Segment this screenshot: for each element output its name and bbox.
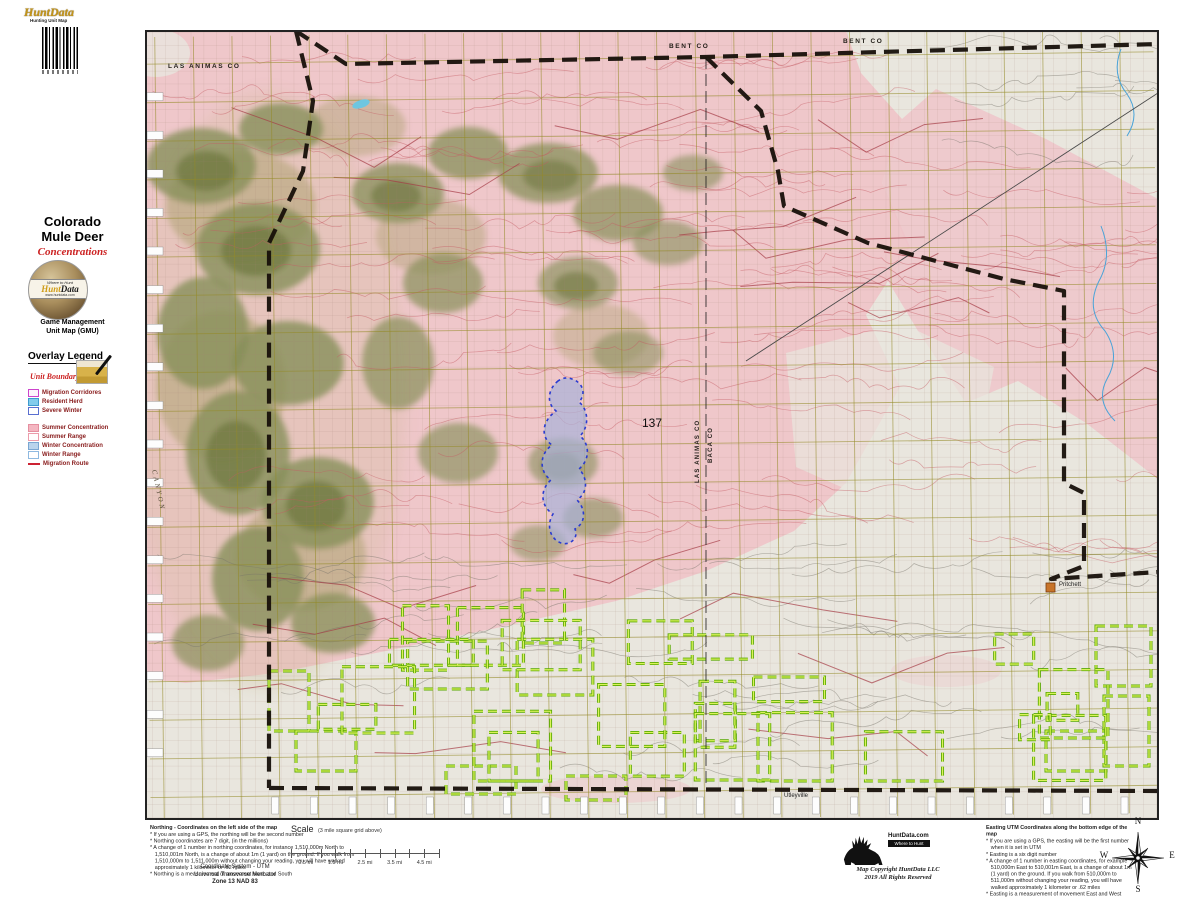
huntdata-elk-logo: HuntData.com Where to Hunt — [836, 825, 966, 861]
legend-line-swatch — [28, 463, 40, 465]
map-title-line1: Colorado — [0, 214, 145, 229]
legend-item: Migration Corridores — [28, 388, 143, 397]
legend-item: Migration Route — [28, 459, 143, 468]
scale-tick — [380, 849, 381, 858]
legend-group: Migration CorridoresResident HerdSevere … — [28, 388, 143, 415]
coord-system-line2: Universal Transverse Mercator — [160, 872, 310, 880]
elk-logo-tagline: Where to Hunt — [888, 840, 930, 847]
legend-item-label: Winter Concentration — [42, 443, 103, 449]
legend-swatch — [28, 407, 39, 415]
legend-swatch — [28, 451, 39, 459]
map-title-line2: Mule Deer — [0, 229, 145, 244]
scale-tick — [424, 849, 425, 858]
legend-item-label: Migration Corridores — [42, 390, 101, 396]
compass-rose: N W E S — [1103, 822, 1173, 894]
scale-block: Scale (3 mile square grid above) 0.5 mi1… — [291, 819, 471, 867]
colorado-map-thumbnail — [76, 360, 108, 384]
legend-item-label: Migration Route — [43, 461, 89, 467]
legend-item: Resident Herd — [28, 397, 143, 406]
map-subtitle-concentrations: Concentrations — [0, 246, 145, 258]
legend-item-label: Resident Herd — [42, 399, 83, 405]
legend-item-label: Winter Range — [42, 452, 81, 458]
legend-swatch — [28, 433, 39, 441]
scale-tick — [395, 849, 396, 858]
sidebar: Colorado Mule Deer Concentrations Where … — [0, 0, 145, 900]
elk-logo-name: HuntData.com — [888, 833, 930, 839]
scale-tick-label: 3.5 mi — [384, 860, 406, 866]
scale-tick-label: 4.5 mi — [413, 860, 435, 866]
scale-tick-label: 1.5 mi — [324, 860, 346, 866]
scale-tick — [306, 849, 307, 858]
legend-item: Severe Winter — [28, 406, 143, 415]
scale-sublabel: (3 mile square grid above) — [318, 828, 382, 834]
map-artwork — [146, 31, 1158, 819]
huntdata-logo: Where to Hunt HuntData www.huntdata.com — [28, 260, 88, 320]
legend-swatch — [28, 424, 39, 432]
compass-star — [1103, 822, 1173, 894]
elk-icon — [836, 825, 890, 865]
legend-swatch — [28, 442, 39, 450]
legend-item: Summer Range — [28, 432, 143, 441]
legend-swatch — [28, 389, 39, 397]
huntdata-url: www.huntdata.com — [28, 293, 88, 297]
map-title: Colorado Mule Deer — [0, 214, 145, 244]
copyright-line2: 2019 All Rights Reserved — [828, 874, 968, 882]
legend-item-label: Summer Concentration — [42, 425, 108, 431]
scale-label: Scale — [291, 824, 314, 834]
town-marker-pritchett — [1046, 583, 1055, 592]
gmu-label-line2: Unit Map (GMU) — [0, 327, 145, 336]
coord-system-line1: Coordinate System - UTM — [160, 864, 310, 872]
scale-tick — [365, 849, 366, 858]
legend-swatch — [28, 398, 39, 406]
map-sheet-page: HuntData Hunting Unit Map Colorado Mule … — [0, 0, 1200, 900]
scale-tick-label: 2.5 mi — [354, 860, 376, 866]
scale-tick — [409, 849, 410, 858]
scale-tick-label: 0.5 mi — [295, 860, 317, 866]
legend-item: Winter Concentration — [28, 441, 143, 450]
coord-system-line3: Zone 13 NAD 83 — [160, 879, 310, 887]
overlay-legend-list: Migration CorridoresResident HerdSevere … — [28, 388, 143, 476]
scale-tick — [321, 849, 322, 858]
scale-tick — [439, 849, 440, 858]
huntdata-wordmark: HuntData — [28, 285, 88, 293]
scale-tick — [335, 849, 336, 858]
coordinate-system-note: Coordinate System - UTM Universal Transv… — [160, 864, 310, 887]
legend-item: Winter Range — [28, 450, 143, 459]
gmu-label: Game Management Unit Map (GMU) — [0, 318, 145, 336]
legend-item-label: Severe Winter — [42, 408, 82, 414]
legend-group: Summer ConcentrationSummer RangeWinter C… — [28, 423, 143, 468]
unit-boundary-label: Unit Boundary — [30, 372, 80, 381]
gmu-label-line1: Game Management — [0, 318, 145, 327]
scale-tick — [350, 849, 351, 858]
copyright-line1: Map Copyright HuntData LLC — [828, 866, 968, 874]
scale-bar: 0.5 mi1.5 mi2.5 mi3.5 mi4.5 mi — [291, 845, 441, 867]
scale-tick — [291, 849, 292, 858]
huntdata-logo-band: Where to Hunt HuntData www.huntdata.com — [28, 279, 88, 299]
legend-item: Summer Concentration — [28, 423, 143, 432]
legend-item-label: Summer Range — [42, 434, 86, 440]
copyright-note: Map Copyright HuntData LLC 2019 All Righ… — [828, 866, 968, 882]
gmu-map: LAS ANIMAS COBENT COBENT COLAS ANIMAS CO… — [145, 30, 1159, 820]
